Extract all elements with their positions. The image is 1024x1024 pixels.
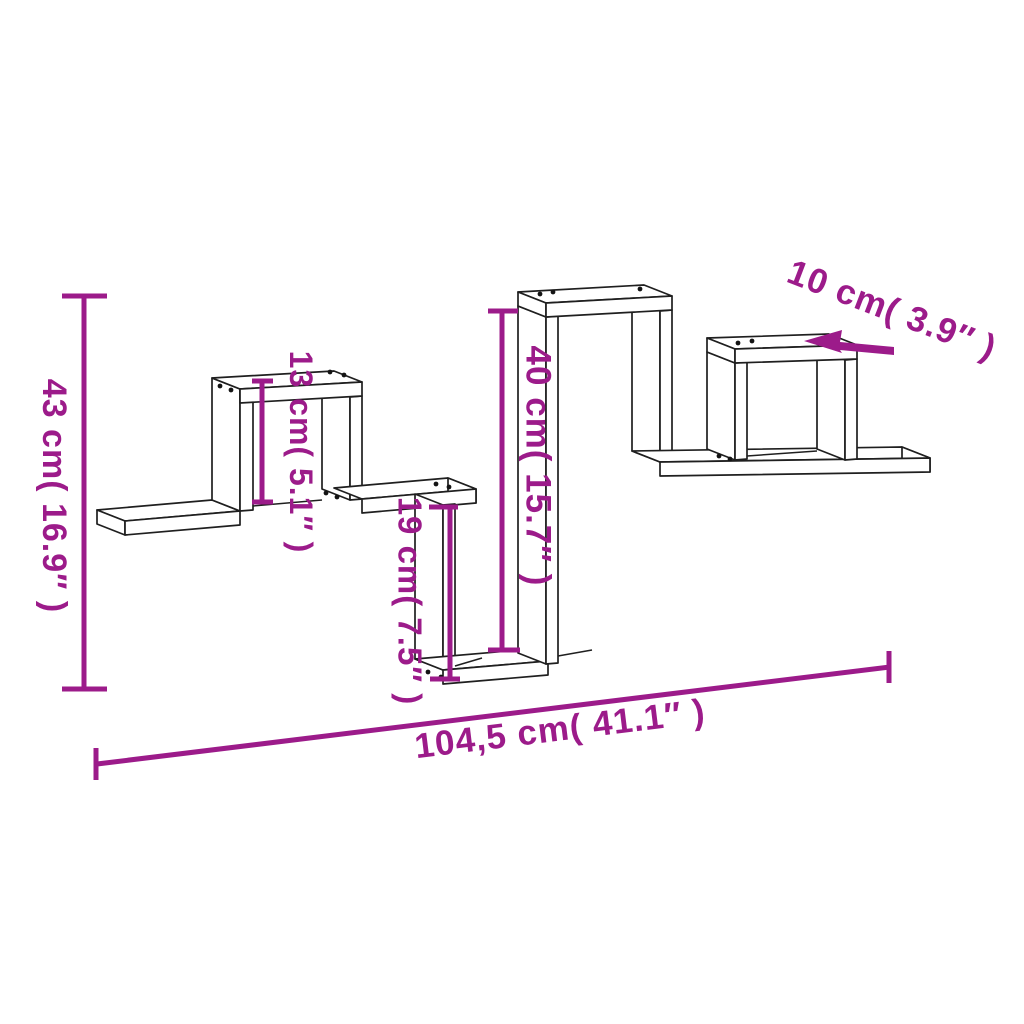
cube3-left-side-face xyxy=(707,352,735,460)
dim-total-width-label: 104,5 cm( 41.1″ ) xyxy=(412,692,707,766)
dim-cube-height-label: 13 cm( 5.1″ ) xyxy=(283,351,319,554)
cube3-left-front-strip xyxy=(735,362,747,460)
cube3-right-side-face xyxy=(817,349,845,460)
dim-mid-height-label: 40 cm( 15.7″ ) xyxy=(519,346,558,587)
dim-total-height-label: 43 cm( 16.9″ ) xyxy=(35,379,73,613)
shelf-drawing xyxy=(97,285,930,684)
diagram-canvas: 43 cm( 16.9″ ) 13 cm( 5.1″ ) 40 cm( 15.7… xyxy=(0,0,1024,1024)
dim-cube-height: 13 cm( 5.1″ ) xyxy=(252,351,319,554)
tall-opening-bottom xyxy=(558,650,592,656)
dimension-diagram: 43 cm( 16.9″ ) 13 cm( 5.1″ ) 40 cm( 15.7… xyxy=(0,0,1024,1024)
dim-step-height: 19 cm( 7.5″ ) xyxy=(392,497,461,706)
cube1-right-front-strip xyxy=(350,396,362,500)
cube3-right-front-strip xyxy=(845,359,857,460)
cube1-left-front-strip xyxy=(240,388,253,511)
dim-step-height-label: 19 cm( 7.5″ ) xyxy=(392,497,429,706)
dim-total-height: 43 cm( 16.9″ ) xyxy=(35,296,107,689)
cube1-left-side-face xyxy=(212,378,240,511)
board45-front-face xyxy=(660,458,930,476)
tall-right-panel-strip xyxy=(660,310,672,462)
tall-right-panel-side xyxy=(632,300,660,462)
cube1-right-side-face xyxy=(322,386,350,500)
